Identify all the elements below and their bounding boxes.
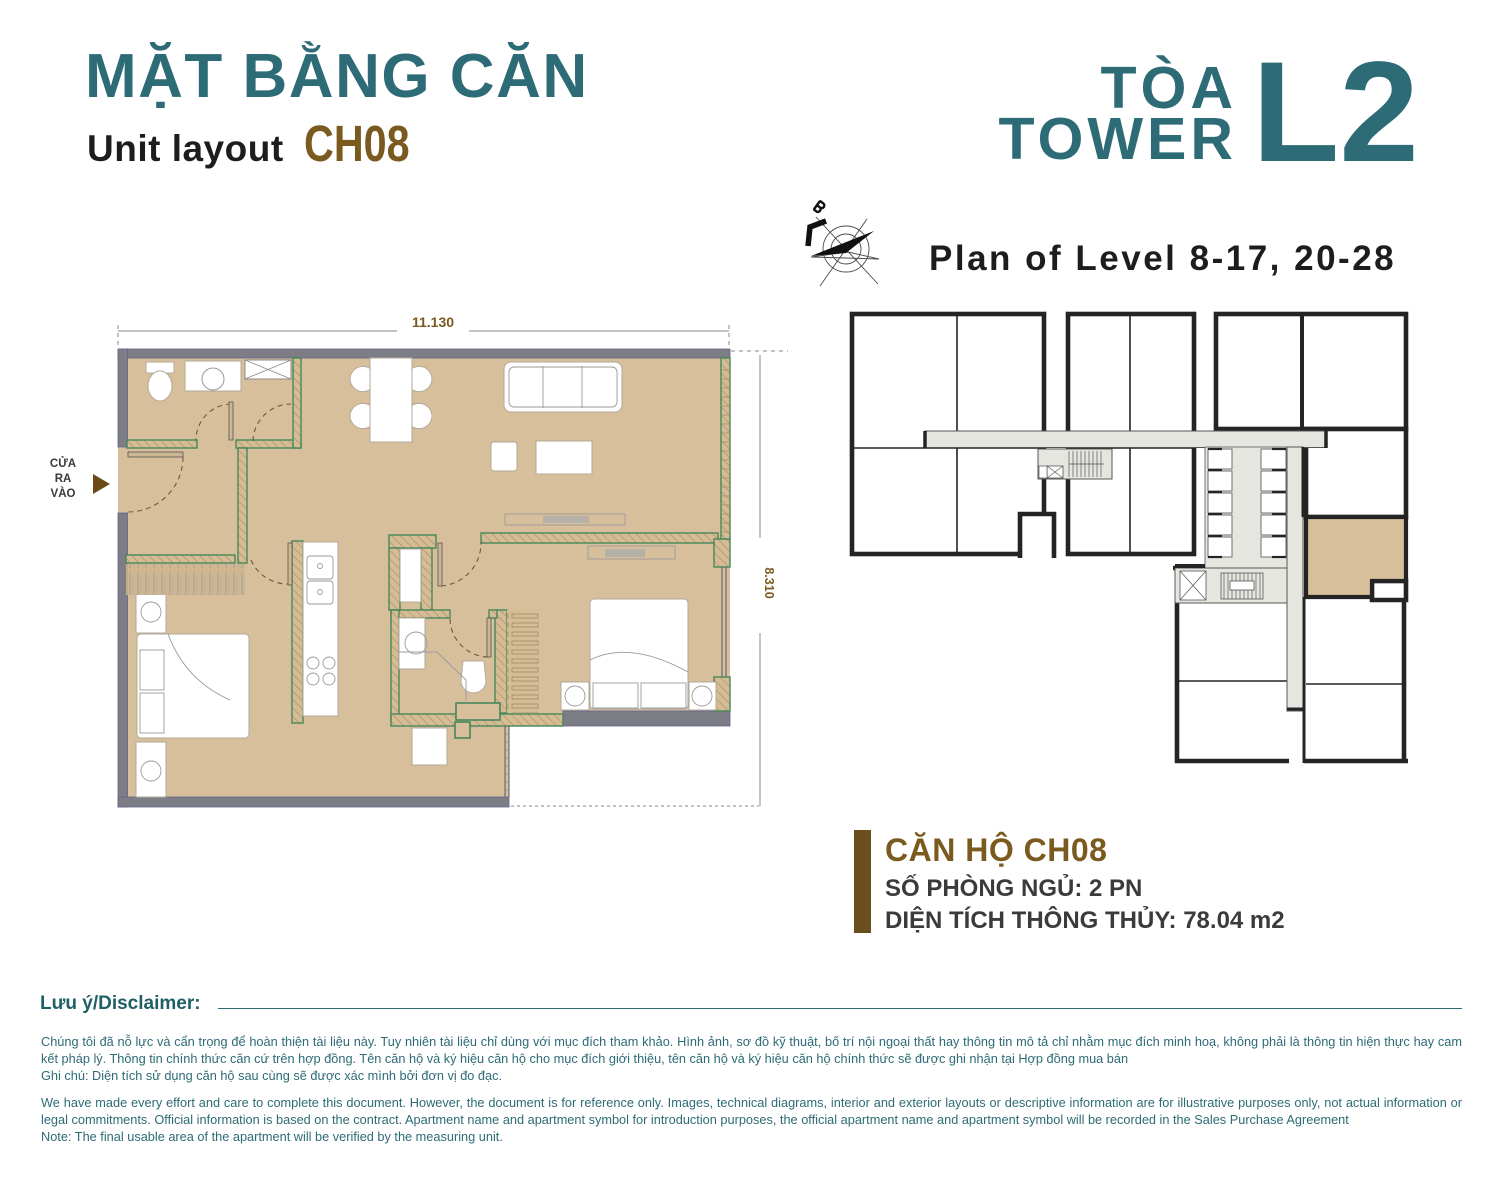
svg-text:CỬA: CỬA	[50, 457, 76, 470]
svg-text:RA: RA	[55, 473, 72, 485]
svg-text:11.130: 11.130	[412, 314, 454, 330]
svg-text:VÀO: VÀO	[51, 487, 76, 500]
svg-text:8.310: 8.310	[762, 567, 776, 598]
